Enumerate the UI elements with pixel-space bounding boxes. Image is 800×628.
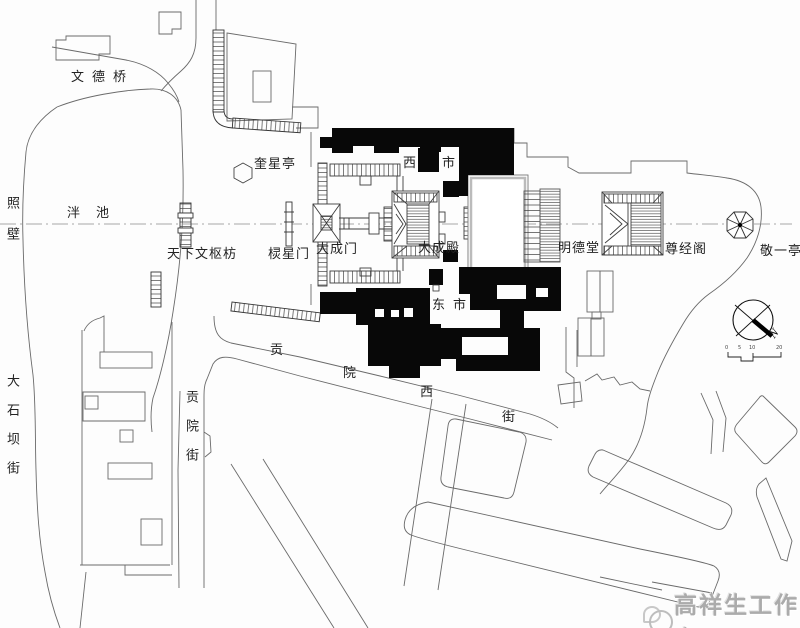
wenshu-archway-shape — [180, 203, 191, 247]
label-gongyuanxi-char2: 院 — [343, 366, 356, 379]
site-plan-canvas: 照壁 文德桥 泮池 天下文枢枋 奎星亭 棂星门 大成门 大成殿 西市 东市 明德… — [0, 0, 800, 628]
scale-bar — [728, 352, 781, 361]
label-dashiba-street: 大石坝街 — [6, 374, 19, 490]
scale-tick-5: 5 — [738, 345, 741, 351]
label-gongyuanxi-char4: 街 — [502, 410, 515, 423]
label-west-market: 西市 — [403, 156, 481, 169]
label-zunjing-pavilion: 尊经阁 — [665, 242, 707, 255]
studio-watermark-text: 高祥生工作室 — [674, 586, 800, 628]
stairs-shape — [151, 272, 161, 307]
label-zhaobi: 照壁 — [6, 196, 19, 258]
jingyi-pavilion-shape — [727, 212, 753, 238]
label-dacheng-gate: 大成门 — [316, 242, 358, 255]
mingde-hall-shape — [468, 175, 560, 274]
label-kuixing-pavilion: 奎星亭 — [254, 157, 296, 170]
studio-logo-icon — [643, 606, 668, 628]
label-dacheng-hall: 大成殿 — [418, 241, 460, 254]
scale-tick-0: 0 — [725, 345, 728, 351]
label-gongyuanxi-char3: 西 — [420, 385, 433, 398]
label-gongyuanxi-char1: 贡 — [270, 343, 283, 356]
label-mingde-hall: 明德堂 — [558, 241, 600, 254]
label-wendeqiao: 文德桥 — [71, 70, 134, 83]
studio-watermark: 高祥生工作室 — [643, 586, 800, 628]
label-wenshu-archway: 天下文枢枋 — [167, 247, 237, 260]
compass-rose — [733, 300, 773, 340]
scale-tick-10: 10 — [749, 345, 755, 351]
label-lingxing-gate: 棂星门 — [268, 247, 310, 260]
map-drawing — [0, 0, 800, 628]
kuixing-pavilion-shape — [234, 163, 252, 183]
label-gongyuan-street: 贡院街 — [185, 390, 198, 477]
label-panchi: 泮池 — [67, 206, 125, 219]
lingxing-gate-shape — [286, 202, 292, 246]
west-monuments — [151, 30, 320, 322]
dacheng-gate-shape — [313, 204, 340, 242]
zunjing-pavilion-shape — [602, 192, 663, 255]
label-east-market: 东市 — [432, 298, 474, 311]
label-jingyi-pavilion: 敬一亭 — [760, 244, 800, 257]
scale-tick-20: 20 — [776, 345, 782, 351]
